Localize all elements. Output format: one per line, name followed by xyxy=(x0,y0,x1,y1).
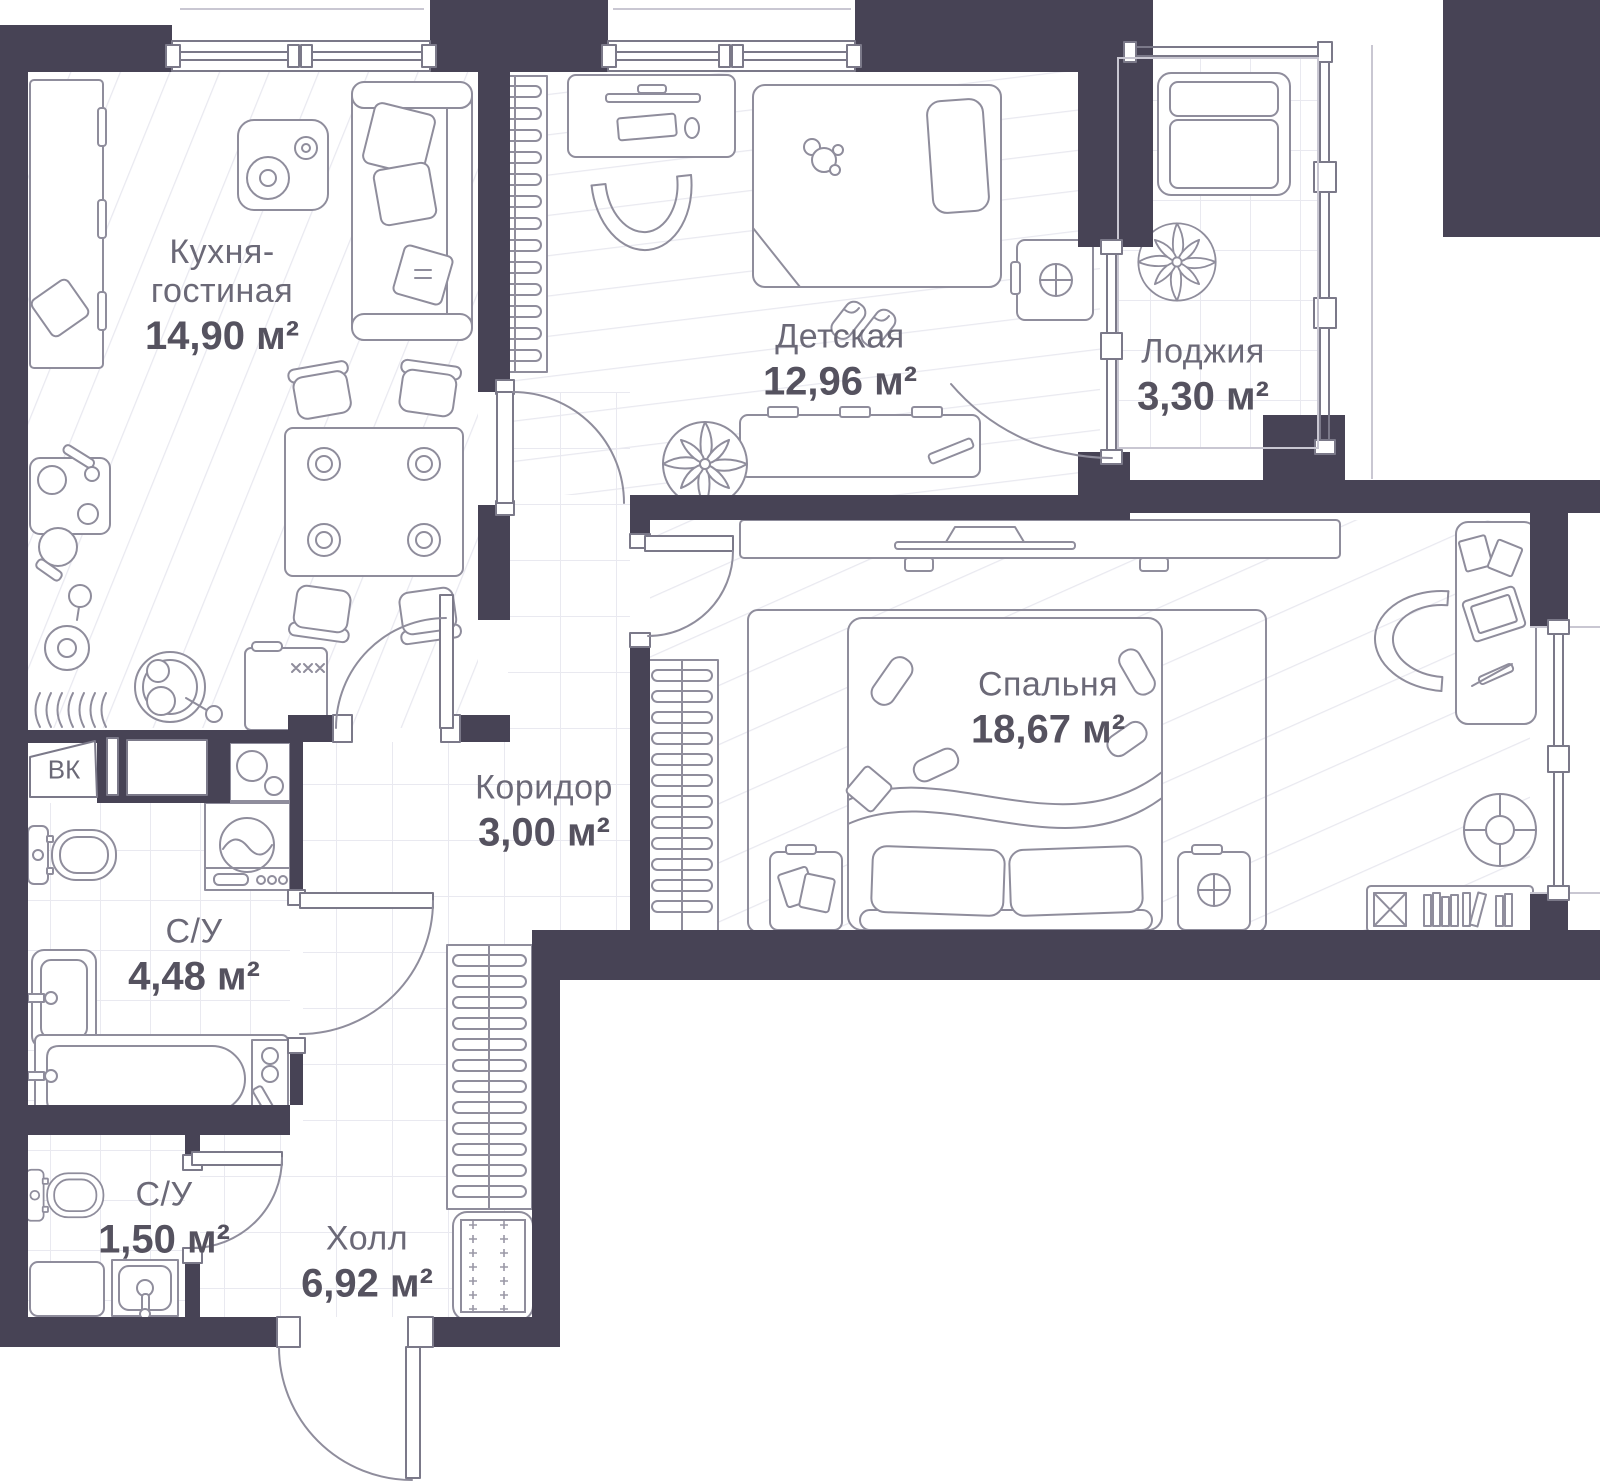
room-label-bedroom: Спальня 18,67 м² xyxy=(971,665,1125,752)
room-area: 4,48 м² xyxy=(128,955,260,1000)
room-label-children: Детская 12,96 м² xyxy=(763,317,917,404)
room-name: Кухня- гостиная xyxy=(145,233,299,311)
sink-small xyxy=(112,1260,178,1319)
room-area: 3,00 м² xyxy=(475,811,613,856)
vanity-cabinet xyxy=(30,1262,104,1316)
desk-bedroom xyxy=(1456,522,1536,724)
room-name: Спальня xyxy=(971,665,1125,704)
room-area: 12,96 м² xyxy=(763,360,917,405)
room-label-bathroom-main: С/У 4,48 м² xyxy=(128,912,260,999)
washing-machine xyxy=(205,803,290,890)
room-label-hall: Холл 6,92 м² xyxy=(301,1219,433,1306)
room-label-kitchen-living: Кухня- гостиная 14,90 м² xyxy=(145,233,299,359)
room-name: Коридор xyxy=(475,768,613,807)
nightstand-left xyxy=(770,845,842,930)
wardrobe-hall xyxy=(447,945,532,1209)
bed-children xyxy=(753,85,1001,287)
floor-plan: Кухня- гостиная 14,90 м² Детская 12,96 м… xyxy=(0,0,1600,1482)
room-name: С/У xyxy=(98,1175,230,1214)
sink-main xyxy=(28,950,96,1048)
room-area: 3,30 м² xyxy=(1137,375,1269,420)
room-area: 18,67 м² xyxy=(971,708,1125,753)
wardrobe-bedroom xyxy=(646,660,718,932)
room-area: 14,90 м² xyxy=(145,314,299,359)
door-entrance xyxy=(277,1317,433,1480)
room-label-corridor: Коридор 3,00 м² xyxy=(475,768,613,855)
kitchen-counter xyxy=(29,80,106,368)
room-name: Детская xyxy=(763,317,917,356)
stereo-speaker xyxy=(238,120,328,210)
kitchen-window xyxy=(166,41,436,71)
bookshelf xyxy=(1367,886,1533,932)
boiler-icon xyxy=(230,743,290,801)
floor-plan-drawing xyxy=(0,0,1600,1482)
desk-children xyxy=(568,75,735,157)
compass-decor-children xyxy=(663,422,747,506)
toilet-small xyxy=(26,1170,103,1221)
shaft-label-vk: ВК xyxy=(48,755,81,786)
room-label-loggia: Лоджия 3,30 м² xyxy=(1137,332,1269,419)
room-name: Лоджия xyxy=(1137,332,1269,371)
room-label-bathroom-small: С/У 1,50 м² xyxy=(98,1175,230,1262)
shelf-bench xyxy=(740,407,980,477)
bath-rack xyxy=(252,1040,288,1116)
room-name: Холл xyxy=(301,1219,433,1258)
plant-pot xyxy=(1464,794,1536,866)
room-area: 6,92 м² xyxy=(301,1262,433,1307)
nightstand-right xyxy=(1178,845,1250,930)
doormat xyxy=(453,1212,533,1320)
room-area: 1,50 м² xyxy=(98,1218,230,1263)
nightstand-children xyxy=(1011,240,1093,320)
children-window xyxy=(602,41,861,71)
room-name: С/У xyxy=(128,912,260,951)
sofa xyxy=(352,82,472,340)
bedroom-window xyxy=(1530,620,1600,900)
toilet-main xyxy=(28,826,116,884)
armchair-loggia xyxy=(1158,73,1290,195)
